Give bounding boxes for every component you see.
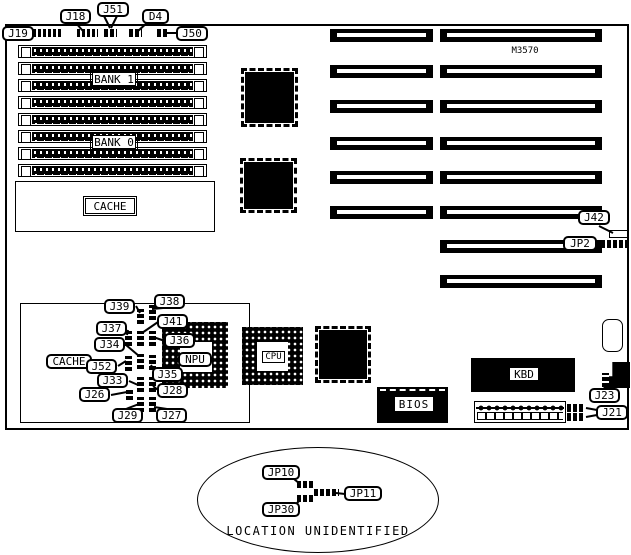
npu-label: NPU — [178, 352, 212, 367]
callout-j33: J33 — [97, 373, 128, 388]
bank1-label: BANK 1 — [92, 72, 136, 86]
callout-j41: J41 — [157, 314, 188, 329]
callout-j18: J18 — [60, 9, 91, 24]
callout-jp11: JP11 — [344, 486, 382, 501]
kbd-label: KBD — [509, 367, 539, 381]
callout-j35: J35 — [152, 367, 183, 382]
callout-j34: J34 — [94, 337, 125, 352]
callout-j50: J50 — [176, 26, 208, 41]
callout-j29: J29 — [112, 408, 143, 423]
callout-jp10: JP10 — [262, 465, 300, 480]
cpu-label: CPU — [262, 351, 285, 363]
callout-j52: J52 — [86, 359, 117, 374]
callout-j37: J37 — [96, 321, 127, 336]
callout-j39: J39 — [104, 299, 135, 314]
callout-j27: J27 — [156, 408, 187, 423]
cache-label-top: CACHE — [85, 198, 135, 214]
callout-jp30: JP30 — [262, 502, 300, 517]
bank0-label: BANK 0 — [92, 135, 136, 149]
callout-j42: J42 — [578, 210, 610, 225]
callout-j51: J51 — [97, 2, 129, 17]
callout-j23: J23 — [589, 388, 620, 403]
callout-jp2: JP2 — [563, 236, 597, 251]
callout-j21: J21 — [596, 405, 628, 420]
callout-j38: J38 — [154, 294, 185, 309]
callout-j36: J36 — [164, 333, 195, 348]
bios-label: BIOS — [395, 397, 433, 411]
callout-d4: D4 — [142, 9, 169, 24]
callout-j19: J19 — [2, 26, 34, 41]
callout-j28: J28 — [157, 383, 188, 398]
motherboard-diagram: BANK 1 BANK 0 CACHE J19 J18 J51 D4 J50 M… — [0, 0, 631, 555]
callout-j26: J26 — [79, 387, 110, 402]
